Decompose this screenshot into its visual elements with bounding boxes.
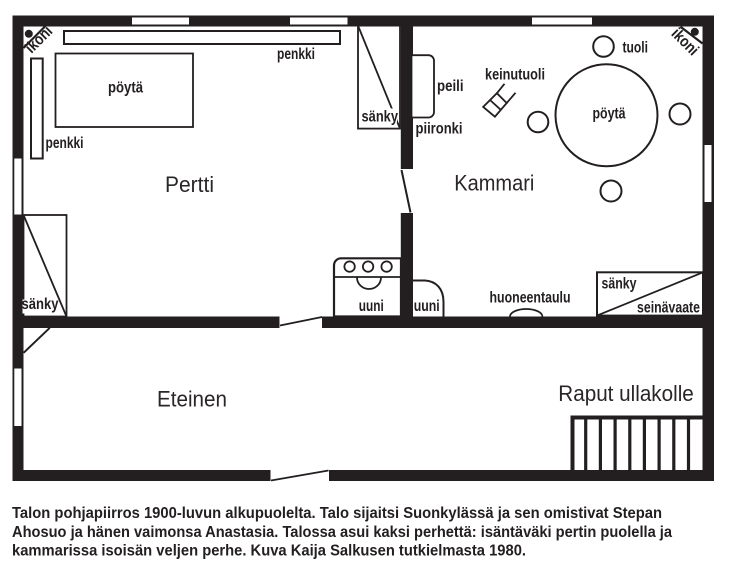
- svg-text:Kammari: Kammari: [454, 171, 534, 196]
- svg-text:keinutuoli: keinutuoli: [485, 67, 545, 84]
- svg-text:kammarissa isoisän veljen perh: kammarissa isoisän veljen perhe. Kuva Ka…: [12, 543, 526, 560]
- svg-text:sänky: sänky: [22, 296, 59, 313]
- svg-text:penkki: penkki: [277, 46, 315, 63]
- svg-text:Pertti: Pertti: [165, 172, 214, 197]
- svg-text:piironki: piironki: [416, 121, 463, 138]
- svg-text:huoneentaulu: huoneentaulu: [490, 289, 571, 306]
- svg-text:peili: peili: [437, 78, 464, 95]
- svg-text:seinävaate: seinävaate: [637, 299, 700, 316]
- svg-text:Eteinen: Eteinen: [157, 387, 227, 412]
- svg-text:pöytä: pöytä: [593, 106, 626, 123]
- svg-text:sänky: sänky: [602, 276, 637, 293]
- svg-text:uuni: uuni: [414, 298, 440, 315]
- svg-text:Talon pohjapiirros 1900-luvun: Talon pohjapiirros 1900-luvun alkupuolel…: [12, 505, 662, 522]
- svg-text:Raput ullakolle: Raput ullakolle: [558, 381, 694, 406]
- svg-text:pöytä: pöytä: [108, 80, 143, 97]
- svg-text:uuni: uuni: [359, 298, 384, 315]
- svg-text:sänky: sänky: [362, 109, 399, 126]
- svg-text:tuoli: tuoli: [623, 40, 649, 57]
- svg-text:ikoni: ikoni: [22, 23, 56, 57]
- svg-text:penkki: penkki: [46, 135, 84, 152]
- svg-text:Ahosuo ja hänen vaimonsa Anast: Ahosuo ja hänen vaimonsa Anastasia. Talo…: [12, 524, 672, 541]
